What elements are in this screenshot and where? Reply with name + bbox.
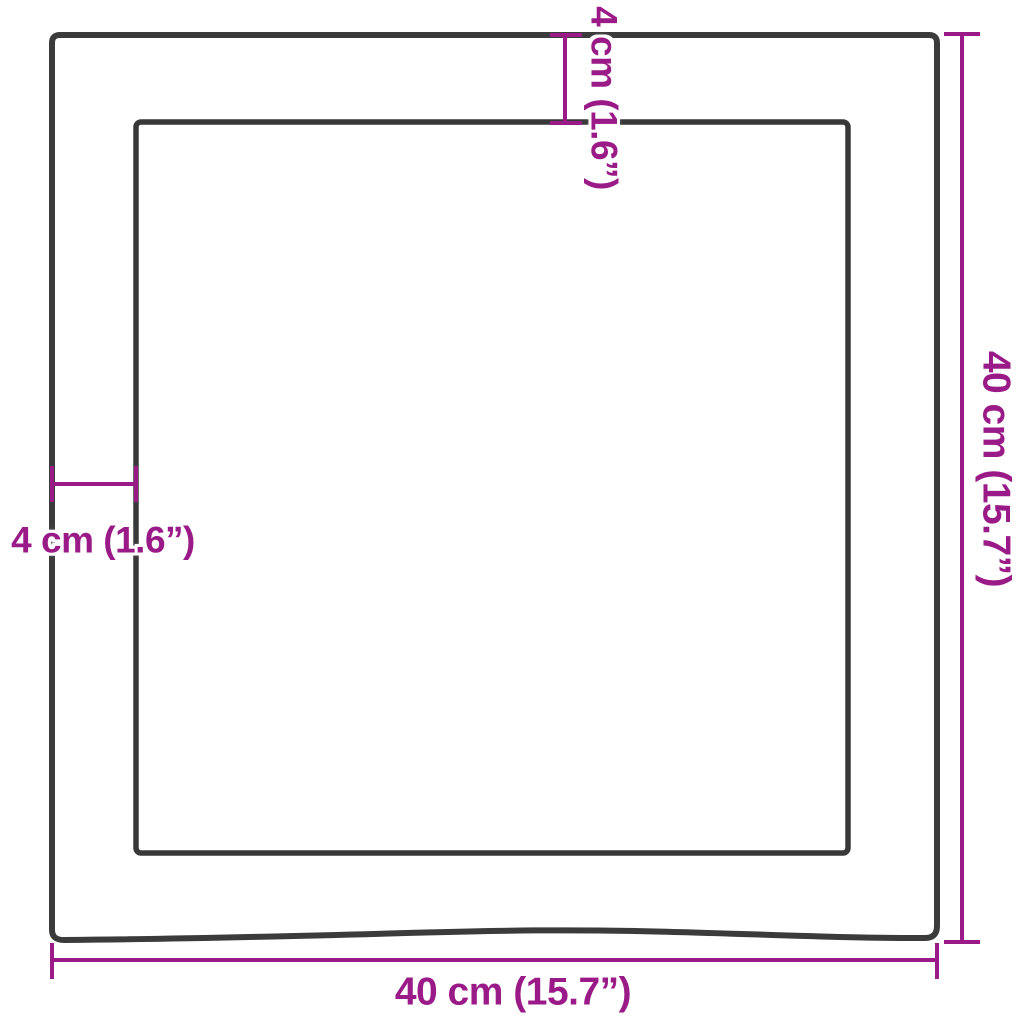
dimension-line-top (550, 35, 582, 123)
board-inner-edge (136, 122, 848, 853)
dimension-diagram: 4 cm (1.6”) 40 cm (15.7”) 4 cm (1.6”) 40… (0, 0, 1024, 1024)
diagram-canvas (0, 0, 1024, 1024)
dimension-label-top: 4 cm (1.6”) (586, 6, 623, 190)
dimension-label-right: 40 cm (15.7”) (977, 351, 1016, 587)
dimension-lines (52, 34, 980, 979)
dimension-label-left: 4 cm (1.6”) (11, 522, 195, 559)
dimension-label-bottom: 40 cm (15.7”) (395, 973, 631, 1012)
board-outer-edge (52, 35, 937, 940)
dimension-line-left (52, 466, 136, 502)
